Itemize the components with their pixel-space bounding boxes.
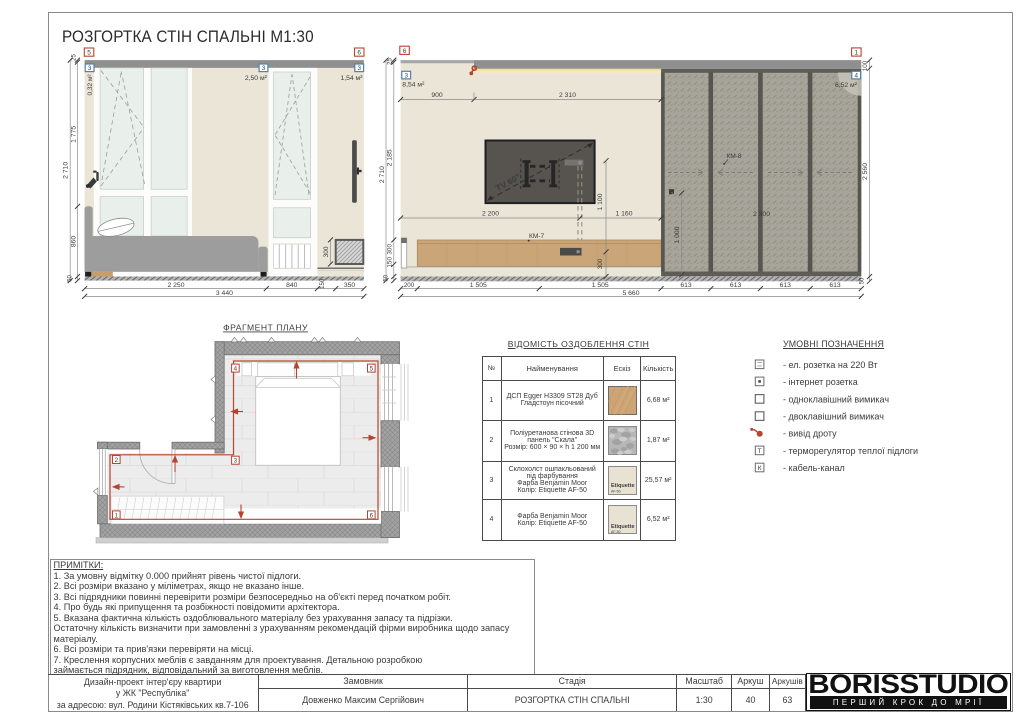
svg-text:0,32 м²: 0,32 м² (87, 74, 94, 96)
svg-text:2,50 м²: 2,50 м² (245, 75, 268, 82)
svg-text:1 775: 1 775 (71, 126, 78, 143)
svg-text:Т: Т (758, 448, 762, 455)
svg-text:100: 100 (862, 60, 869, 71)
svg-text:- вивід дроту: - вивід дроту (783, 429, 837, 439)
svg-text:1 160: 1 160 (615, 211, 632, 218)
svg-text:Etiquette: Etiquette (611, 483, 635, 489)
svg-text:2 185: 2 185 (387, 149, 394, 166)
svg-text:150: 150 (387, 257, 394, 268)
svg-text:4: 4 (234, 366, 238, 373)
svg-text:5 660: 5 660 (622, 290, 639, 297)
svg-text:2 300: 2 300 (753, 211, 770, 218)
svg-text:2 200: 2 200 (482, 211, 499, 218)
svg-text:- інтернет розетка: - інтернет розетка (783, 377, 858, 387)
svg-text:3 440: 3 440 (216, 290, 233, 297)
svg-text:AF-50: AF-50 (611, 489, 621, 493)
svg-text:- кабель-канал: - кабель-канал (783, 463, 845, 473)
svg-text:1,54 м²: 1,54 м² (340, 75, 363, 82)
svg-text:25: 25 (388, 58, 394, 65)
svg-text:6: 6 (370, 512, 374, 519)
svg-text:- терморегулятор теплої підлог: - терморегулятор теплої підлоги (783, 446, 918, 456)
svg-text:КМ-8: КМ-8 (726, 153, 742, 160)
svg-text:25: 25 (72, 54, 78, 61)
svg-text:5: 5 (370, 366, 374, 373)
svg-text:- одноклавішний вимикач: - одноклавішний вимикач (783, 394, 889, 404)
svg-text:860: 860 (71, 236, 78, 248)
svg-text:1 505: 1 505 (592, 282, 609, 289)
svg-text:613: 613 (829, 282, 841, 289)
svg-text:1 000: 1 000 (674, 226, 681, 243)
svg-text:К: К (758, 465, 762, 472)
svg-text:1: 1 (854, 50, 858, 57)
svg-text:6,52 м²: 6,52 м² (835, 82, 858, 89)
svg-text:300: 300 (387, 244, 394, 255)
svg-text:1: 1 (115, 512, 119, 519)
svg-text:2 710: 2 710 (63, 162, 70, 179)
svg-text:5: 5 (87, 50, 91, 57)
svg-text:50: 50 (860, 277, 866, 284)
svg-text:AF-50: AF-50 (611, 530, 621, 534)
svg-text:3: 3 (404, 73, 408, 80)
svg-text:3: 3 (88, 65, 92, 72)
svg-text:1 505: 1 505 (470, 282, 487, 289)
svg-text:3: 3 (234, 458, 238, 465)
svg-text:КМ-7: КМ-7 (529, 233, 545, 240)
svg-text:ФРАГМЕНТ ПЛАНУ: ФРАГМЕНТ ПЛАНУ (223, 323, 308, 333)
svg-text:6: 6 (403, 48, 407, 55)
svg-text:613: 613 (780, 282, 792, 289)
svg-text:613: 613 (680, 282, 692, 289)
svg-text:- двоклавішний вимикач: - двоклавішний вимикач (783, 412, 884, 422)
svg-text:3: 3 (262, 65, 266, 72)
svg-text:840: 840 (286, 282, 298, 289)
svg-text:2 560: 2 560 (862, 163, 869, 180)
svg-text:50: 50 (383, 274, 389, 281)
svg-text:2 310: 2 310 (559, 92, 576, 99)
svg-text:6: 6 (357, 50, 361, 57)
svg-text:2 250: 2 250 (167, 282, 184, 289)
svg-text:200: 200 (404, 282, 415, 289)
svg-text:2: 2 (115, 457, 119, 464)
svg-text:2 710: 2 710 (379, 166, 386, 183)
svg-text:50: 50 (68, 275, 74, 282)
svg-text:- ел. розетка на 220 Вт: - ел. розетка на 220 Вт (783, 360, 878, 370)
svg-text:300: 300 (323, 246, 330, 257)
svg-text:350: 350 (344, 282, 356, 289)
svg-text:900: 900 (431, 92, 443, 99)
svg-text:4: 4 (854, 73, 858, 80)
svg-text:300: 300 (597, 258, 604, 269)
svg-text:150: 150 (320, 278, 326, 289)
svg-text:8,54 м²: 8,54 м² (402, 82, 425, 89)
svg-text:3: 3 (357, 65, 361, 72)
svg-text:1 100: 1 100 (597, 193, 604, 210)
svg-text:613: 613 (730, 282, 742, 289)
